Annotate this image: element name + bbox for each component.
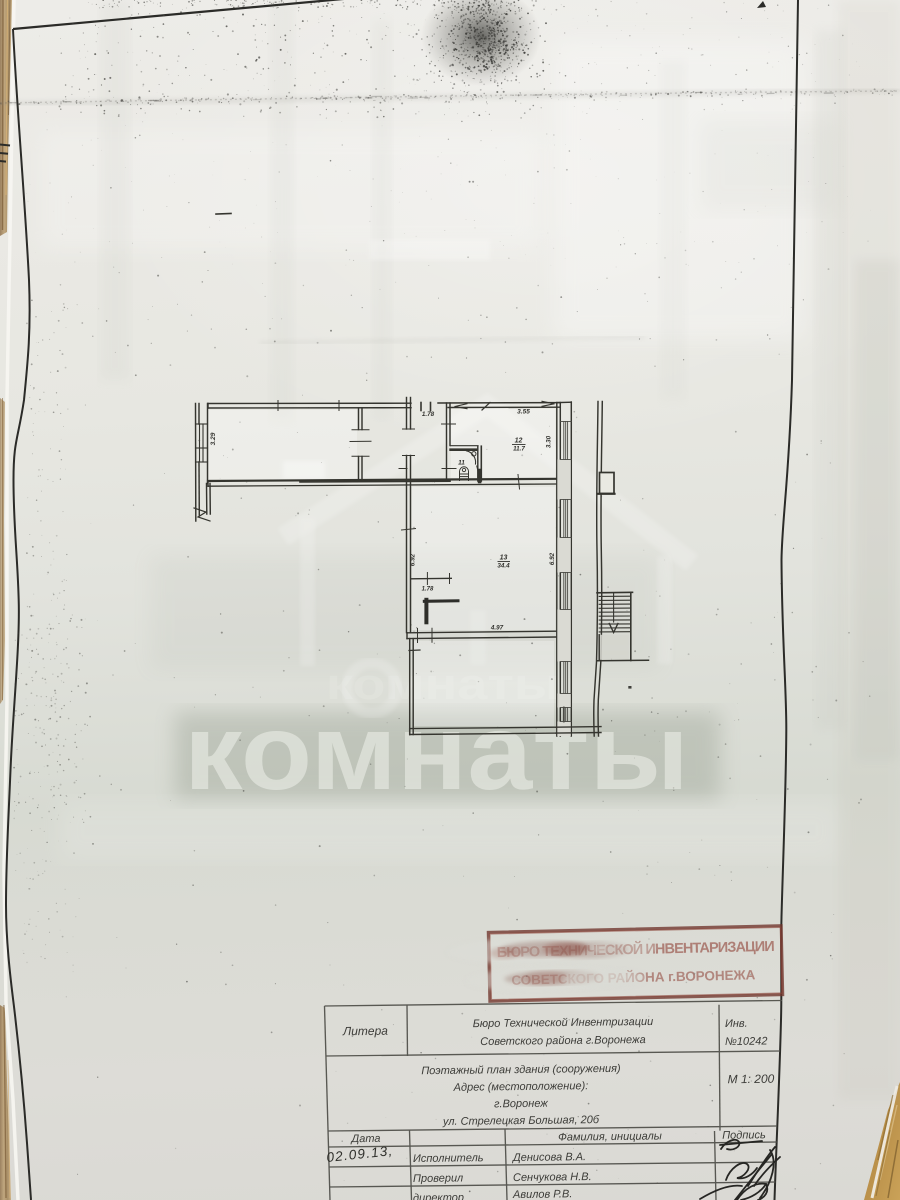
svg-text:11.7: 11.7: [513, 446, 525, 453]
svg-text:директор: директор: [413, 1192, 464, 1200]
svg-text:Бюро Технической Инвентризации: Бюро Технической Инвентризации: [473, 1016, 654, 1030]
svg-text:6.92: 6.92: [549, 552, 556, 565]
svg-text:Подпись: Подпись: [722, 1129, 766, 1142]
svg-text:11: 11: [458, 460, 465, 467]
svg-text:34.4: 34.4: [497, 563, 510, 570]
svg-text:Литера: Литера: [342, 1024, 388, 1039]
svg-text:3.29: 3.29: [210, 432, 217, 445]
svg-text:13: 13: [500, 555, 508, 562]
svg-text:Исполнитель: Исполнитель: [413, 1152, 484, 1165]
svg-text:Фамилия, инициалы: Фамилия, инициалы: [558, 1130, 662, 1143]
svg-text:Проверил: Проверил: [413, 1172, 463, 1185]
svg-text:Авилов Р.В.: Авилов Р.В.: [512, 1188, 573, 1200]
svg-text:1.78: 1.78: [422, 587, 434, 593]
svg-text:Денисова В.А.: Денисова В.А.: [511, 1151, 586, 1164]
svg-text:Советского района г.Воронежа: Советского района г.Воронежа: [480, 1034, 646, 1048]
svg-text:3.55: 3.55: [517, 409, 530, 416]
svg-text:6.92: 6.92: [410, 553, 417, 566]
svg-text:3.30: 3.30: [546, 435, 553, 448]
svg-text:г.Воронеж: г.Воронеж: [494, 1098, 548, 1111]
svg-text:Адрес (местоположение):: Адрес (местоположение):: [453, 1080, 589, 1094]
svg-text:Дата: Дата: [349, 1133, 380, 1145]
svg-text:4.97: 4.97: [490, 625, 504, 632]
svg-text:Поэтажный план здания (сооруже: Поэтажный план здания (сооружения): [421, 1063, 621, 1077]
svg-text:Инв.: Инв.: [725, 1018, 748, 1030]
svg-text:ул. Стрелецкая Большая, 20б: ул. Стрелецкая Большая, 20б: [442, 1114, 600, 1128]
svg-text:1.78: 1.78: [422, 411, 435, 418]
svg-text:№10242: №10242: [725, 1035, 768, 1048]
svg-text:М 1: 200: М 1: 200: [728, 1072, 775, 1087]
svg-text:12: 12: [515, 438, 523, 445]
svg-text:Сенчукова Н.В.: Сенчукова Н.В.: [513, 1171, 592, 1184]
